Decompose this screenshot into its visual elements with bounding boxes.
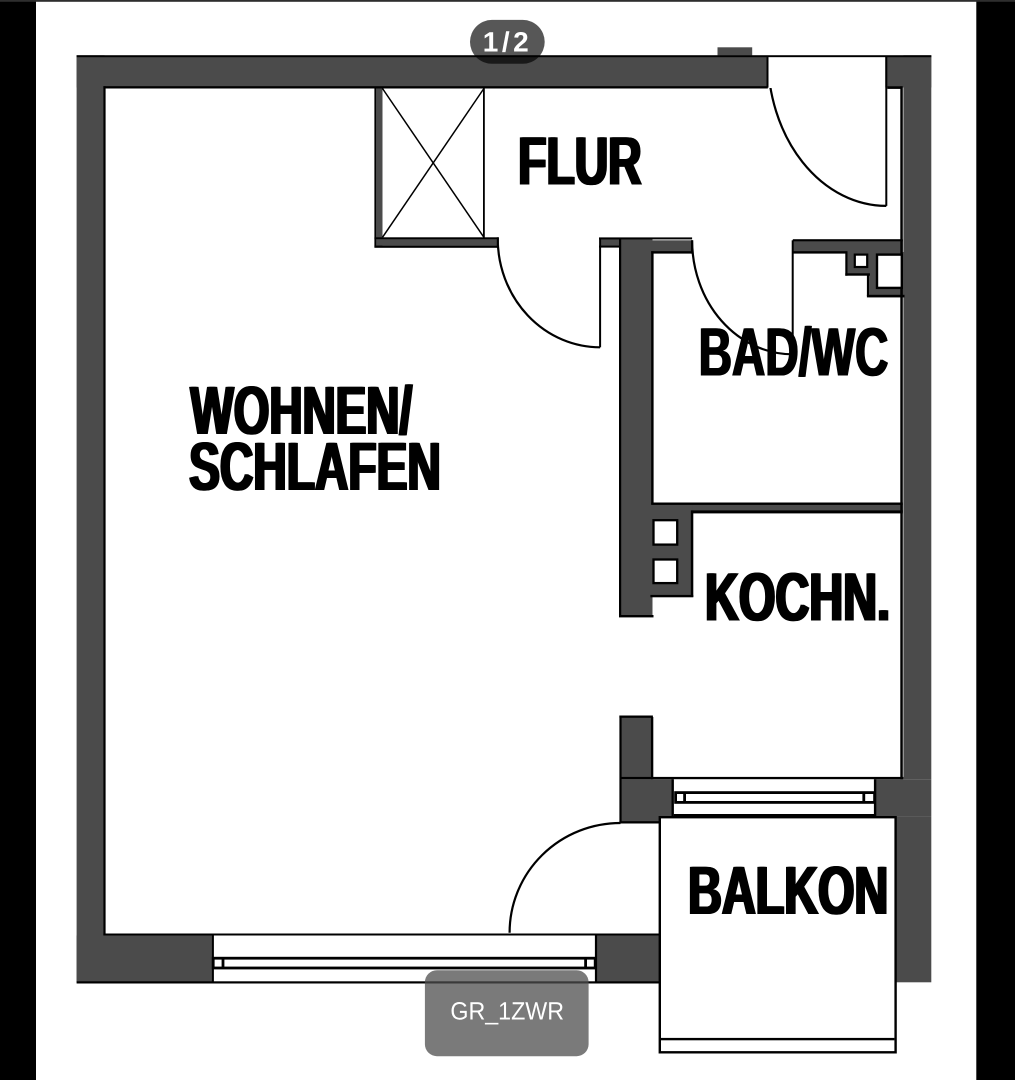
svg-text:SCHLAFEN: SCHLAFEN <box>191 428 443 505</box>
svg-text:1/2: 1/2 <box>483 26 532 57</box>
svg-text:KOCHN.: KOCHN. <box>706 559 891 636</box>
svg-text:GR_1ZWR: GR_1ZWR <box>450 998 564 1026</box>
svg-text:BALKON: BALKON <box>690 852 890 929</box>
svg-text:FLUR: FLUR <box>520 122 643 199</box>
svg-text:BAD/WC: BAD/WC <box>700 314 890 391</box>
